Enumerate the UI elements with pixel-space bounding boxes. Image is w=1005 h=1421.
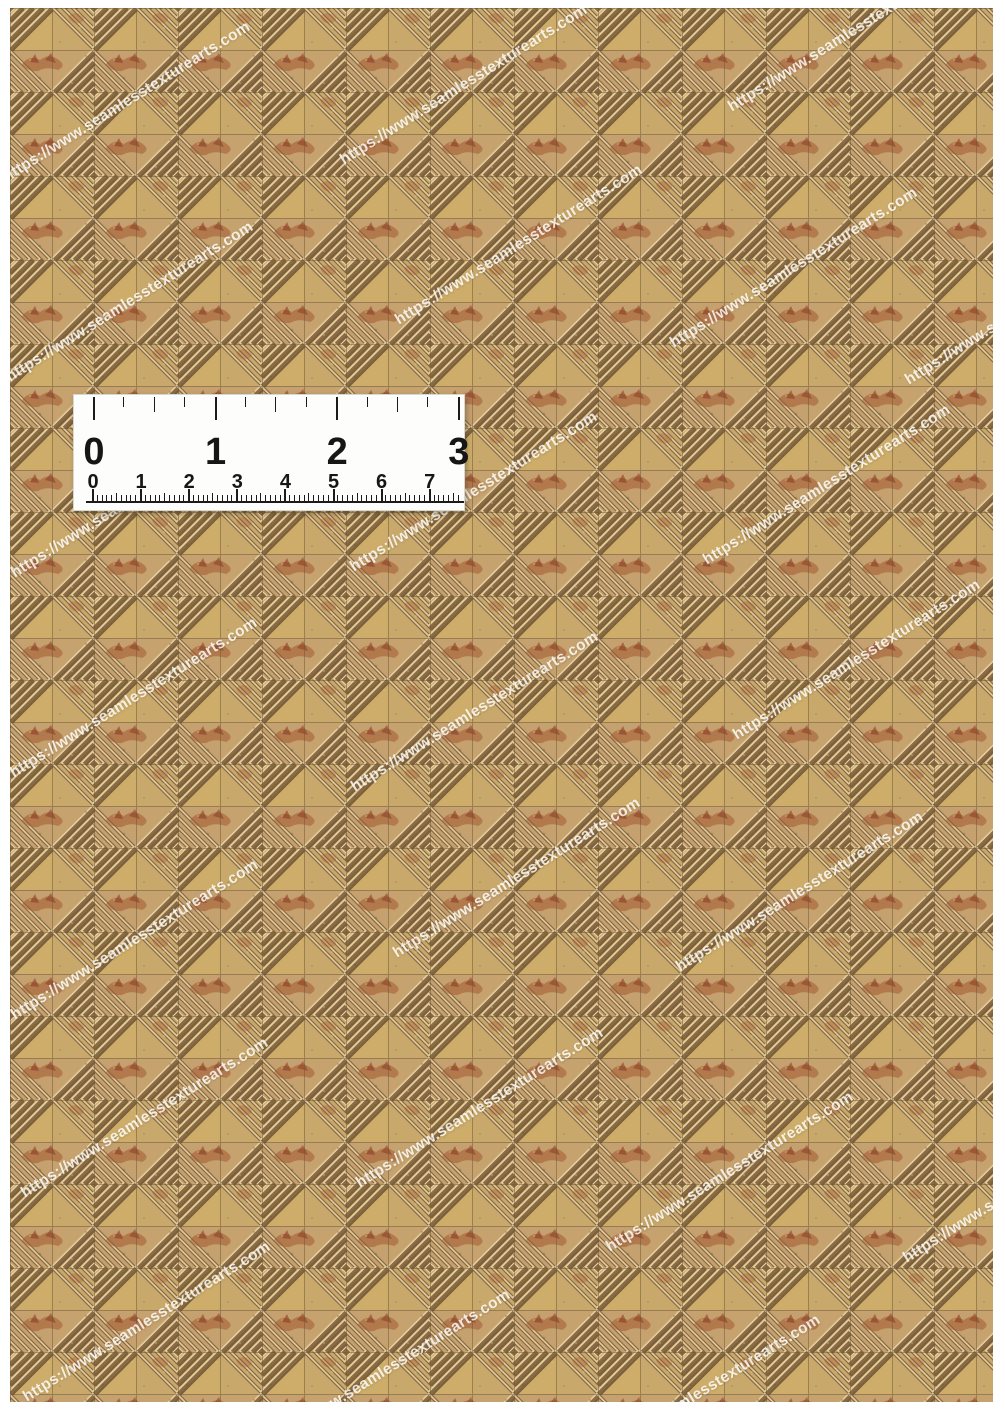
cm-label-7: 7 <box>424 471 435 494</box>
mm-tick <box>251 495 252 501</box>
mm-tick <box>448 495 449 501</box>
cm-label-5: 5 <box>328 471 339 494</box>
mm-tick <box>227 495 228 501</box>
mm-tick <box>409 495 410 501</box>
mm-tick <box>342 495 343 501</box>
half-cm-tick <box>116 493 117 501</box>
half-cm-tick <box>453 493 454 501</box>
mm-tick <box>231 495 232 501</box>
ruler-cm-scale: 01234567 <box>74 395 464 510</box>
mm-tick <box>121 495 122 501</box>
mm-tick <box>424 495 425 501</box>
ruler-overlay: 0123 01234567 <box>73 394 465 511</box>
mm-tick <box>150 495 151 501</box>
half-cm-tick <box>212 493 213 501</box>
mm-tick <box>193 495 194 501</box>
mm-tick <box>130 495 131 501</box>
half-cm-tick <box>357 493 358 501</box>
mm-tick <box>366 495 367 501</box>
mm-tick <box>270 495 271 501</box>
mm-tick <box>323 495 324 501</box>
mm-tick <box>347 495 348 501</box>
mm-tick <box>135 495 136 501</box>
mm-tick <box>169 495 170 501</box>
mm-tick <box>203 495 204 501</box>
half-cm-tick <box>260 493 261 501</box>
cm-label-4: 4 <box>280 471 291 494</box>
mm-tick <box>289 495 290 501</box>
mm-tick <box>385 495 386 501</box>
mm-tick <box>328 495 329 501</box>
mm-tick <box>352 495 353 501</box>
cm-label-2: 2 <box>184 471 195 494</box>
mm-tick <box>145 495 146 501</box>
mm-tick <box>159 495 160 501</box>
mm-tick <box>265 495 266 501</box>
texture-sheet-page: https://www.seamlesstexturearts.comhttps… <box>0 0 1005 1421</box>
cm-label-6: 6 <box>376 471 387 494</box>
mm-tick <box>390 495 391 501</box>
mm-tick <box>174 495 175 501</box>
mm-tick <box>275 495 276 501</box>
cm-baseline <box>86 501 464 503</box>
mm-tick <box>198 495 199 501</box>
parquet-texture-swatch: https://www.seamlesstexturearts.comhttps… <box>10 8 993 1402</box>
mm-tick <box>222 495 223 501</box>
cm-label-1: 1 <box>136 471 147 494</box>
mm-tick <box>102 495 103 501</box>
mm-tick <box>376 495 377 501</box>
mm-tick <box>111 495 112 501</box>
mm-tick <box>155 495 156 501</box>
mm-tick <box>241 495 242 501</box>
mm-tick <box>400 495 401 501</box>
mm-tick <box>246 495 247 501</box>
mm-tick <box>126 495 127 501</box>
mm-tick <box>318 495 319 501</box>
mm-tick <box>207 495 208 501</box>
mm-tick <box>183 495 184 501</box>
mm-tick <box>361 495 362 501</box>
mm-tick <box>179 495 180 501</box>
half-cm-tick <box>308 493 309 501</box>
mm-tick <box>434 495 435 501</box>
cm-label-3: 3 <box>232 471 243 494</box>
mm-tick <box>106 495 107 501</box>
mm-tick <box>395 495 396 501</box>
mm-tick <box>458 495 459 501</box>
mm-tick <box>304 495 305 501</box>
mm-tick <box>299 495 300 501</box>
mm-tick <box>419 495 420 501</box>
mm-tick <box>443 495 444 501</box>
mm-tick <box>280 495 281 501</box>
mm-tick <box>371 495 372 501</box>
cm-label-0: 0 <box>87 471 98 494</box>
mm-tick <box>438 495 439 501</box>
mm-tick <box>313 495 314 501</box>
mm-tick <box>217 495 218 501</box>
mm-tick <box>97 495 98 501</box>
mm-tick <box>337 495 338 501</box>
half-cm-tick <box>164 493 165 501</box>
mm-tick <box>256 495 257 501</box>
half-cm-tick <box>405 493 406 501</box>
mm-tick <box>414 495 415 501</box>
mm-tick <box>294 495 295 501</box>
